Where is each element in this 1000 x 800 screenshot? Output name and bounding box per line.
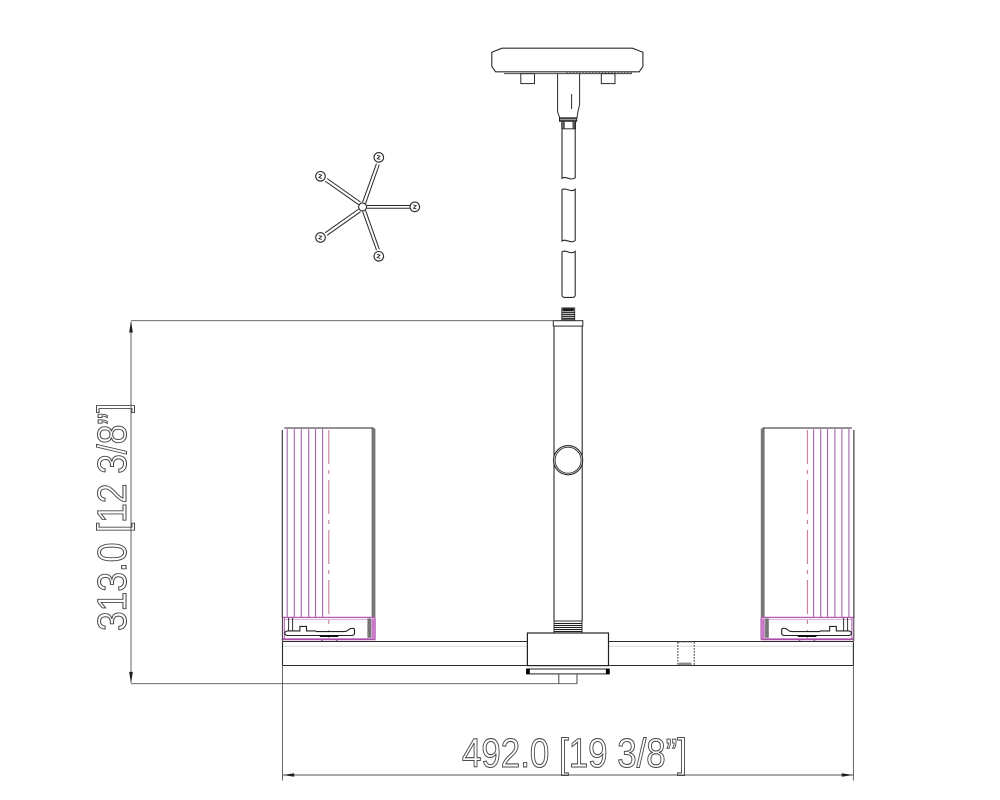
svg-text:492.0 [19 3/8”]: 492.0 [19 3/8”] xyxy=(462,730,687,776)
svg-text:313.0 [12 3/8”]: 313.0 [12 3/8”] xyxy=(89,403,135,631)
